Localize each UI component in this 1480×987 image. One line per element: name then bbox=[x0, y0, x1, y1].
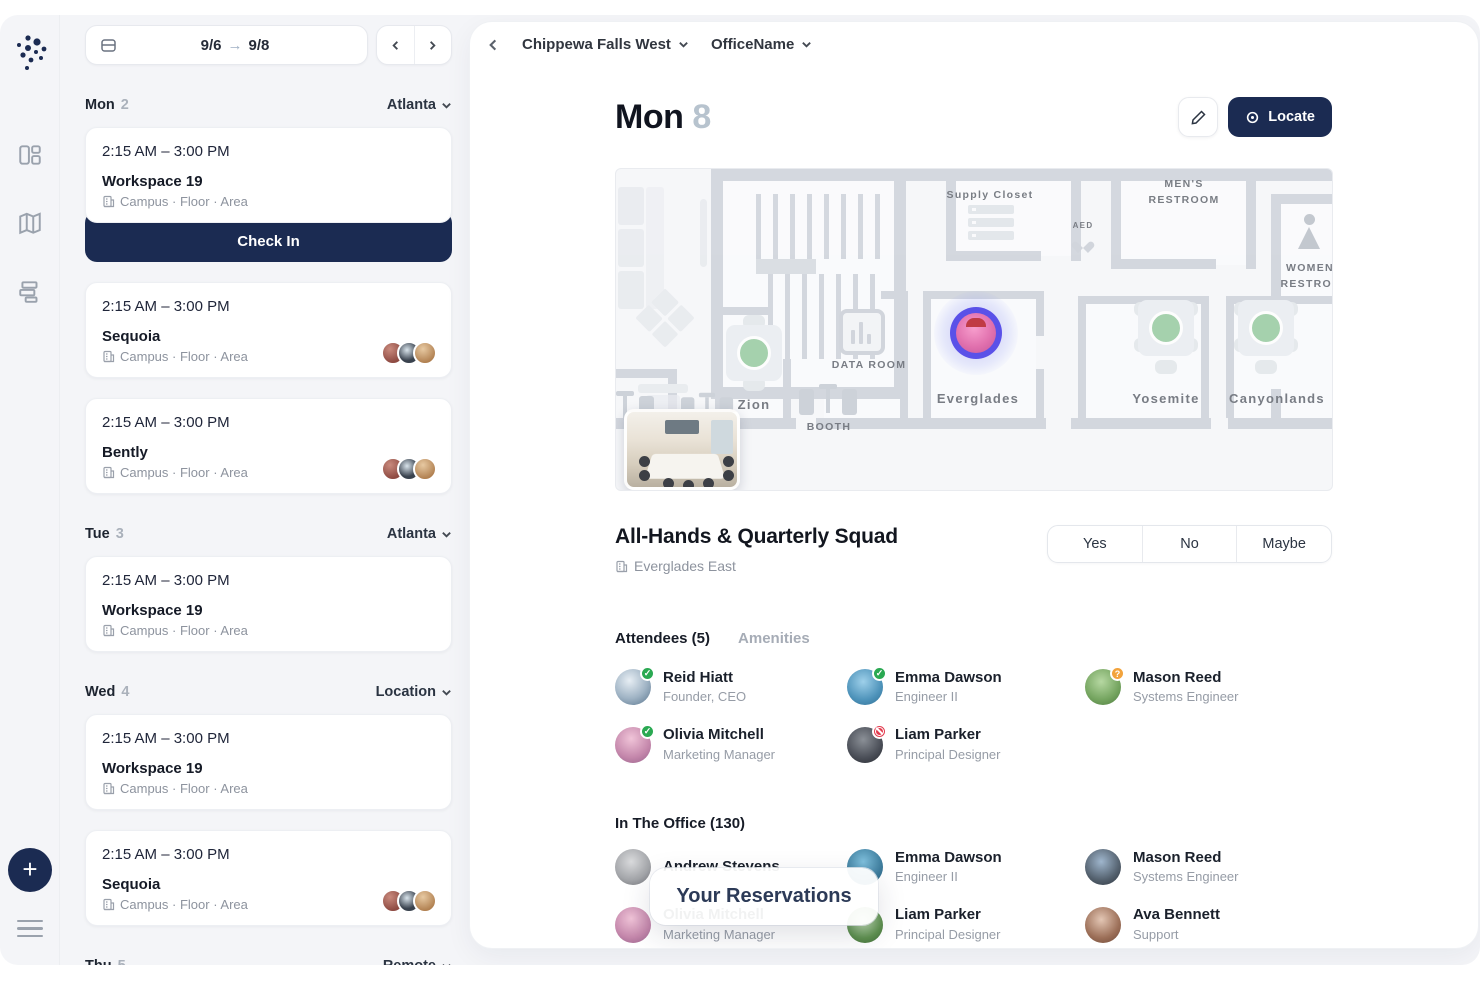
day-number: 5 bbox=[118, 958, 126, 965]
event-location: Everglades East bbox=[634, 558, 736, 574]
reservation-time: 2:15 AM – 3:00 PM bbox=[102, 730, 435, 747]
chevron-down-icon bbox=[678, 39, 689, 50]
app-root: + 9/6→9/8 Mon 2 Atlanta 2:15 AM – 3:00 P… bbox=[0, 0, 1480, 987]
reservation-card[interactable]: 2:15 AM – 3:00 PM Sequoia Campus · Floor… bbox=[85, 830, 452, 926]
pencil-icon bbox=[1190, 109, 1207, 126]
aed-icon bbox=[1076, 237, 1090, 250]
seat-canyonlands[interactable] bbox=[1227, 294, 1305, 362]
attendee-row[interactable]: Liam ParkerPrincipal Designer bbox=[847, 725, 1085, 763]
day-header-tue: Tue 3 Atlanta bbox=[85, 526, 452, 542]
person-name: Liam Parker bbox=[895, 905, 1001, 925]
building-select[interactable]: Chippewa Falls West bbox=[522, 36, 689, 53]
edit-button[interactable] bbox=[1178, 97, 1218, 137]
person-name: Emma Dawson bbox=[895, 848, 1002, 868]
seat-yosemite[interactable] bbox=[1127, 294, 1205, 362]
person-title: Marketing Manager bbox=[663, 746, 775, 764]
location-select-tue[interactable]: Atlanta bbox=[387, 526, 452, 542]
seat-zion[interactable] bbox=[715, 319, 793, 387]
dashboard-icon[interactable] bbox=[17, 142, 43, 168]
reservation-meta: Campus · Floor · Area bbox=[120, 897, 248, 912]
rsvp-maybe-button[interactable]: Maybe bbox=[1236, 526, 1331, 562]
reservation-title: Workspace 19 bbox=[102, 173, 435, 190]
room-label-supply-closet: Supply Closet bbox=[947, 189, 1034, 201]
location-select-thu[interactable]: Remote bbox=[383, 958, 452, 965]
person-title: Engineer II bbox=[895, 868, 1002, 886]
avatar bbox=[413, 341, 437, 365]
office-person-row[interactable]: Liam ParkerPrincipal Designer bbox=[847, 905, 1085, 943]
rsvp-yes-button[interactable]: Yes bbox=[1048, 526, 1142, 562]
back-icon[interactable] bbox=[486, 38, 500, 52]
building-icon bbox=[102, 195, 115, 208]
room-label-womens-restroom: WOMEN'S RESTROOM bbox=[1261, 261, 1333, 293]
room-photo-thumbnail[interactable] bbox=[624, 409, 740, 490]
building-icon bbox=[102, 782, 115, 795]
room-label-data-room: DATA ROOM bbox=[832, 359, 907, 371]
reservation-meta: Campus · Floor · Area bbox=[120, 194, 248, 209]
reservation-time: 2:15 AM – 3:00 PM bbox=[102, 572, 435, 589]
add-button[interactable]: + bbox=[8, 848, 52, 892]
user-avatar-pin[interactable] bbox=[950, 307, 1002, 359]
office-person-row[interactable]: Mason ReedSystems Engineer bbox=[1085, 848, 1333, 886]
app-logo-icon[interactable] bbox=[11, 33, 49, 80]
person-name: Mason Reed bbox=[1133, 668, 1239, 688]
your-reservations-tooltip: Your Reservations bbox=[650, 868, 878, 925]
reservations-sidebar: 9/6→9/8 Mon 2 Atlanta 2:15 AM – 3:00 PM … bbox=[60, 15, 470, 965]
room-label-mens-restroom: MEN'S RESTROOM bbox=[1129, 177, 1239, 209]
status-declined-icon bbox=[872, 724, 887, 739]
room-label-yosemite: Yosemite bbox=[1132, 391, 1199, 406]
location-select-mon[interactable]: Atlanta bbox=[387, 97, 452, 113]
tab-attendees[interactable]: Attendees (5) bbox=[615, 630, 710, 647]
avatar bbox=[413, 457, 437, 481]
building-icon bbox=[102, 350, 115, 363]
app-shell: + 9/6→9/8 Mon 2 Atlanta 2:15 AM – 3:00 P… bbox=[0, 15, 1480, 965]
locate-button[interactable]: Locate bbox=[1228, 97, 1332, 137]
main-panel: Chippewa Falls West OfficeName Mon8 Loca… bbox=[470, 22, 1478, 948]
rsvp-no-button[interactable]: No bbox=[1142, 526, 1237, 562]
reservation-meta: Campus · Floor · Area bbox=[120, 465, 248, 480]
person-title: Systems Engineer bbox=[1133, 868, 1239, 886]
attendee-avatars bbox=[381, 889, 437, 913]
reservation-card[interactable]: 2:15 AM – 3:00 PM Workspace 19 Campus · … bbox=[85, 714, 452, 810]
page-title-date: 8 bbox=[692, 98, 710, 136]
chevron-down-icon bbox=[441, 529, 452, 540]
breadcrumb: Chippewa Falls West OfficeName bbox=[486, 36, 812, 53]
day-label: Wed bbox=[85, 684, 115, 700]
reservation-meta: Campus · Floor · Area bbox=[120, 623, 248, 638]
attendee-row[interactable]: ✓ Emma DawsonEngineer II bbox=[847, 668, 1085, 706]
person-title: Founder, CEO bbox=[663, 688, 746, 706]
reservation-time: 2:15 AM – 3:00 PM bbox=[102, 143, 435, 160]
locate-icon bbox=[1245, 110, 1260, 125]
ottoman-furniture bbox=[635, 288, 694, 347]
event-title: All-Hands & Quarterly Squad bbox=[615, 525, 898, 549]
page-title: Mon8 bbox=[615, 98, 711, 137]
attendee-row[interactable]: ✓ Olivia MitchellMarketing Manager bbox=[615, 725, 847, 763]
building-icon bbox=[102, 624, 115, 637]
reservation-title: Workspace 19 bbox=[102, 760, 435, 777]
chart-icon bbox=[839, 309, 885, 355]
room-label-canyonlands: Canyonlands bbox=[1229, 391, 1325, 406]
person-title: Engineer II bbox=[895, 688, 1002, 706]
day-header-thu: Thu 5 Remote bbox=[85, 958, 452, 965]
person-title: Systems Engineer bbox=[1133, 688, 1239, 706]
reservation-card[interactable]: 2:15 AM – 3:00 PM Workspace 19 Campus · … bbox=[85, 127, 452, 223]
status-yes-icon: ✓ bbox=[640, 724, 655, 739]
reservation-meta: Campus · Floor · Area bbox=[120, 349, 248, 364]
attendee-avatars bbox=[381, 341, 437, 365]
reservation-time: 2:15 AM – 3:00 PM bbox=[102, 298, 435, 315]
building-icon bbox=[102, 898, 115, 911]
day-number: 2 bbox=[121, 97, 129, 113]
person-title: Principal Designer bbox=[895, 926, 1001, 944]
day-header-mon: Mon 2 Atlanta bbox=[85, 97, 452, 113]
building-icon bbox=[102, 466, 115, 479]
day-number: 4 bbox=[121, 684, 129, 700]
room-label-zion: Zion bbox=[738, 397, 771, 412]
day-label: Tue bbox=[85, 526, 110, 542]
day-label: Mon bbox=[85, 97, 115, 113]
reservation-card[interactable]: 2:15 AM – 3:00 PM Workspace 19 Campus · … bbox=[85, 556, 452, 652]
chevron-down-icon bbox=[441, 100, 452, 111]
room-label-aed: AED bbox=[1073, 221, 1094, 230]
status-yes-icon: ✓ bbox=[640, 666, 655, 681]
location-select-wed[interactable]: Location bbox=[376, 684, 452, 700]
room-label-booth: BOOTH bbox=[807, 421, 851, 433]
date-range-picker[interactable]: 9/6→9/8 bbox=[85, 25, 368, 65]
person-title: Support bbox=[1133, 926, 1220, 944]
reservation-card[interactable]: 2:15 AM – 3:00 PM Sequoia Campus · Floor… bbox=[85, 282, 452, 378]
person-name: Ava Bennett bbox=[1133, 905, 1220, 925]
tab-amenities[interactable]: Amenities bbox=[738, 630, 810, 647]
attendee-row[interactable]: ✓ Reid HiattFounder, CEO bbox=[615, 668, 847, 706]
map-icon[interactable] bbox=[17, 210, 43, 236]
rsvp-segmented-control: Yes No Maybe bbox=[1047, 525, 1332, 563]
menu-icon[interactable] bbox=[17, 920, 43, 938]
prev-day-button[interactable] bbox=[377, 26, 415, 64]
office-select[interactable]: OfficeName bbox=[711, 36, 812, 53]
reservation-title: Workspace 19 bbox=[102, 602, 435, 619]
restroom-person-icon bbox=[1298, 214, 1320, 249]
date-to: 9/8 bbox=[249, 37, 270, 54]
status-yes-icon: ✓ bbox=[872, 666, 887, 681]
date-arrow: → bbox=[222, 37, 249, 54]
booth-table-icon bbox=[799, 384, 857, 420]
person-name: Reid Hiatt bbox=[663, 668, 746, 688]
office-person-row[interactable]: Emma DawsonEngineer II bbox=[847, 848, 1085, 886]
date-from: 9/6 bbox=[201, 37, 222, 54]
building-icon bbox=[615, 560, 628, 573]
day-label: Thu bbox=[85, 958, 112, 965]
chevron-down-icon bbox=[801, 39, 812, 50]
in-office-heading: In The Office (130) bbox=[615, 815, 745, 832]
status-maybe-icon: ? bbox=[1110, 666, 1125, 681]
reservation-time: 2:15 AM – 3:00 PM bbox=[102, 846, 435, 863]
icon-rail: + bbox=[0, 15, 60, 965]
reservation-time: 2:15 AM – 3:00 PM bbox=[102, 414, 435, 431]
person-name: Emma Dawson bbox=[895, 668, 1002, 688]
person-title: Marketing Manager bbox=[663, 926, 775, 944]
person-name: Liam Parker bbox=[895, 725, 1001, 745]
user-location-pin bbox=[934, 291, 1018, 375]
next-day-button[interactable] bbox=[415, 26, 452, 64]
calendar-icon bbox=[100, 37, 117, 54]
floor-map[interactable]: Supply Closet AED MEN'S RESTROOM WOMEN'S… bbox=[615, 168, 1333, 491]
reservation-card[interactable]: 2:15 AM – 3:00 PM Bently Campus · Floor … bbox=[85, 398, 452, 494]
person-name: Mason Reed bbox=[1133, 848, 1239, 868]
office-person-row[interactable]: Ava BennettSupport bbox=[1085, 905, 1333, 943]
day-number: 3 bbox=[116, 526, 124, 542]
attendee-avatars bbox=[381, 457, 437, 481]
reservation-meta: Campus · Floor · Area bbox=[120, 781, 248, 796]
room-label-everglades: Everglades bbox=[937, 391, 1019, 406]
attendee-row[interactable]: ? Mason ReedSystems Engineer bbox=[1085, 668, 1333, 706]
attendees-list: ✓ Reid HiattFounder, CEO ✓ Emma DawsonEn… bbox=[615, 668, 1333, 764]
spaces-icon[interactable] bbox=[17, 278, 43, 304]
person-name: Olivia Mitchell bbox=[663, 725, 775, 745]
chevron-down-icon bbox=[441, 961, 452, 966]
day-header-wed: Wed 4 Location bbox=[85, 684, 452, 700]
avatar bbox=[413, 889, 437, 913]
chevron-down-icon bbox=[441, 687, 452, 698]
person-title: Principal Designer bbox=[895, 746, 1001, 764]
